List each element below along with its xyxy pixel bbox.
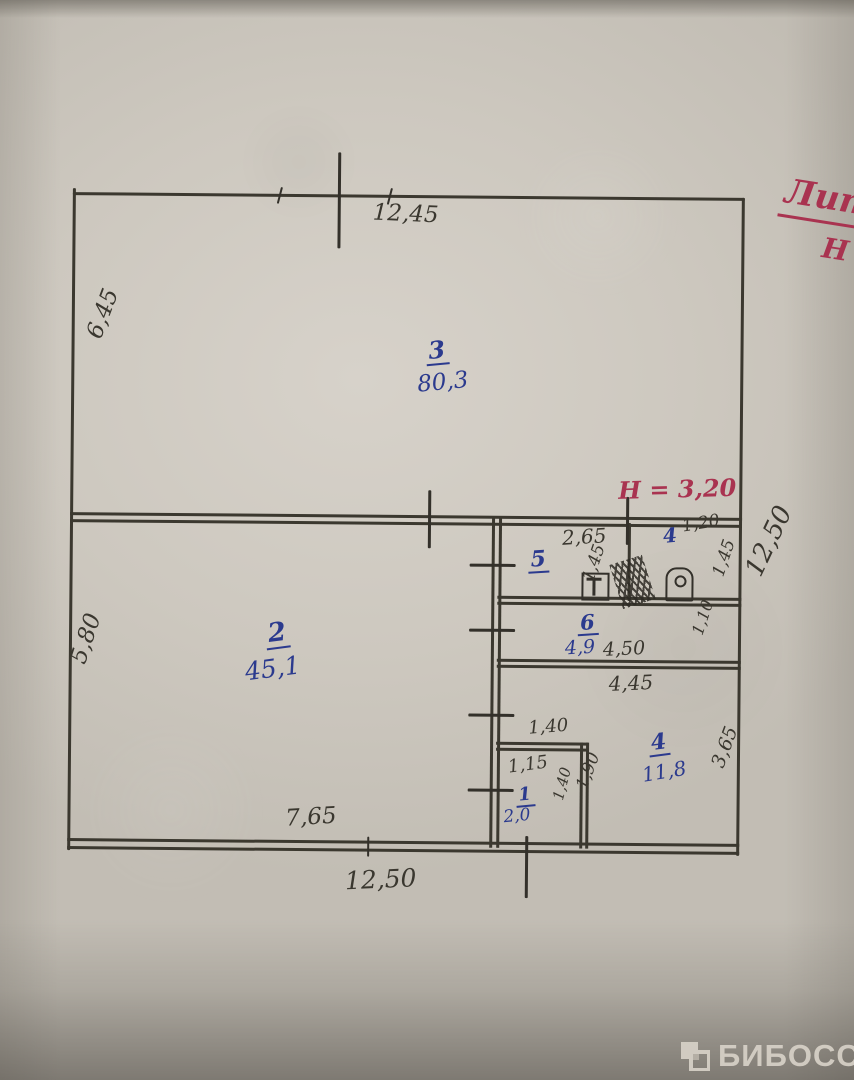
- room1-depth-outer: 1,90: [574, 750, 603, 791]
- room1-depth-inner: 1,40: [551, 766, 574, 802]
- room1-width-outer: 1,40: [528, 717, 569, 738]
- room5-number: 5: [527, 548, 550, 574]
- floor-plan: 12,45 6,45 5,80 12,50 7,65 12,50 Н = 3,2…: [67, 192, 745, 858]
- tick-bottom-small: [367, 837, 369, 857]
- wall-room6-bottom: [497, 659, 741, 670]
- room1-width-inner: 1,15: [507, 754, 549, 777]
- dim-bottom-overall: 12,50: [344, 865, 417, 893]
- dim-top: 12,45: [372, 202, 439, 228]
- room4wc-width: 1,20: [681, 513, 721, 536]
- room6-width-below: 4,45: [608, 672, 653, 694]
- registry-note-lit: Лит: [777, 174, 854, 233]
- room1-area: 2,0: [503, 807, 532, 827]
- room4wc-number: 4: [659, 524, 681, 547]
- tick-vwall-4: [468, 789, 514, 792]
- grid-logo-icon: [680, 1041, 710, 1071]
- wall-outer-bottom: [67, 838, 739, 855]
- tick-bottom-long: [525, 836, 529, 898]
- tick-vwall-1: [470, 564, 516, 567]
- room2-number: 2: [263, 618, 291, 650]
- watermark-label: БИБОСС: [718, 1038, 854, 1074]
- toilet-fixture-icon: [665, 567, 693, 601]
- dim-right-side: 12,50: [741, 502, 797, 580]
- room3-area: 80,3: [416, 369, 469, 397]
- dim-bottom-inner: 7,65: [285, 805, 338, 831]
- photographed-floorplan-page: { "ink": { "pencil": "#3b382f", "blue": …: [0, 0, 854, 1080]
- wall-room1-top: [496, 742, 588, 752]
- room6-number: 6: [576, 611, 598, 636]
- dim-left-lower: 5,80: [68, 611, 106, 667]
- room2-area: 45,1: [243, 652, 301, 684]
- tick-vwall-2: [469, 629, 515, 632]
- room6-width: 4,50: [603, 639, 646, 660]
- wall-mid-horizontal: [70, 512, 742, 528]
- room4-area: 11,8: [641, 758, 688, 785]
- ceiling-height-note: Н = 3,20: [618, 476, 737, 503]
- room4-number: 4: [647, 730, 671, 758]
- room3-number: 3: [424, 337, 449, 366]
- room4wc-depth: 1,45: [711, 538, 739, 579]
- wall-outer-top: [73, 192, 745, 201]
- room6-area: 4,9: [564, 638, 595, 659]
- watermark: БИБОСС: [680, 1038, 854, 1074]
- tick-top-long: [337, 152, 341, 248]
- registry-note-h: Н: [820, 234, 851, 266]
- wall-mid-vertical: [489, 518, 502, 848]
- tick-vwall-3: [468, 714, 514, 717]
- dim-left-upper: 6,45: [84, 286, 123, 342]
- tick-midwall-long: [428, 490, 432, 548]
